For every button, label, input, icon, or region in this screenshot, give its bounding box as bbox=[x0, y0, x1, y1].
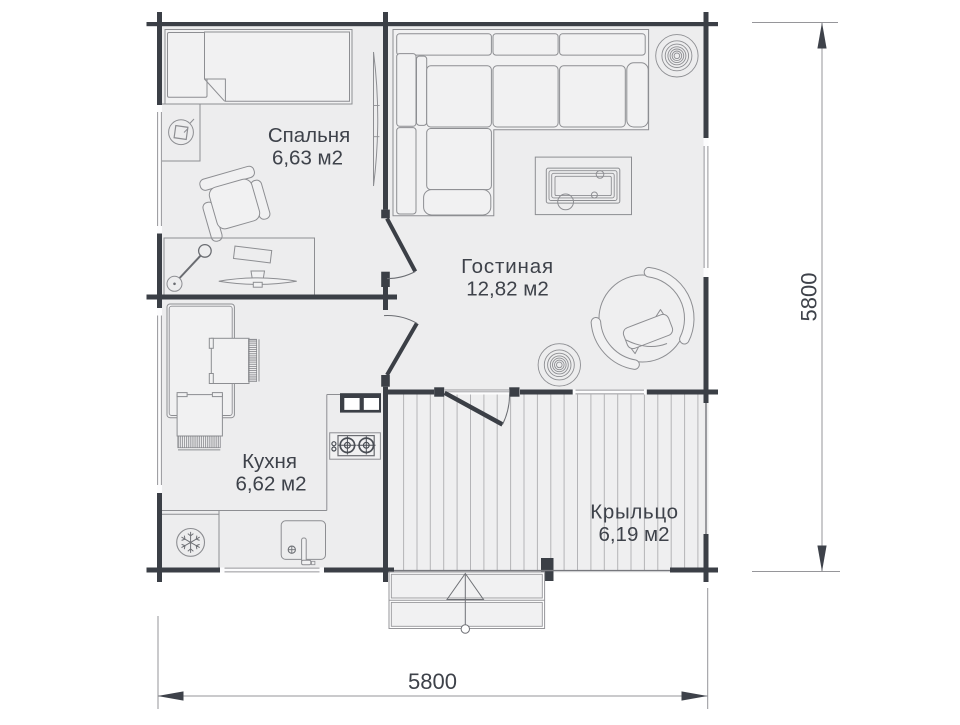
svg-text:5800: 5800 bbox=[408, 669, 457, 694]
svg-text:12,82 м2: 12,82 м2 bbox=[466, 278, 549, 301]
svg-text:Кухня: Кухня bbox=[242, 450, 297, 473]
svg-text:6,62 м2: 6,62 м2 bbox=[235, 473, 306, 496]
svg-text:Гостиная: Гостиная bbox=[461, 255, 554, 278]
svg-text:6,63 м2: 6,63 м2 bbox=[272, 147, 343, 170]
svg-text:5800: 5800 bbox=[797, 273, 822, 322]
svg-text:6,19 м2: 6,19 м2 bbox=[598, 523, 669, 546]
svg-text:Спальня: Спальня bbox=[268, 124, 350, 147]
svg-text:Крыльцо: Крыльцо bbox=[590, 501, 679, 524]
